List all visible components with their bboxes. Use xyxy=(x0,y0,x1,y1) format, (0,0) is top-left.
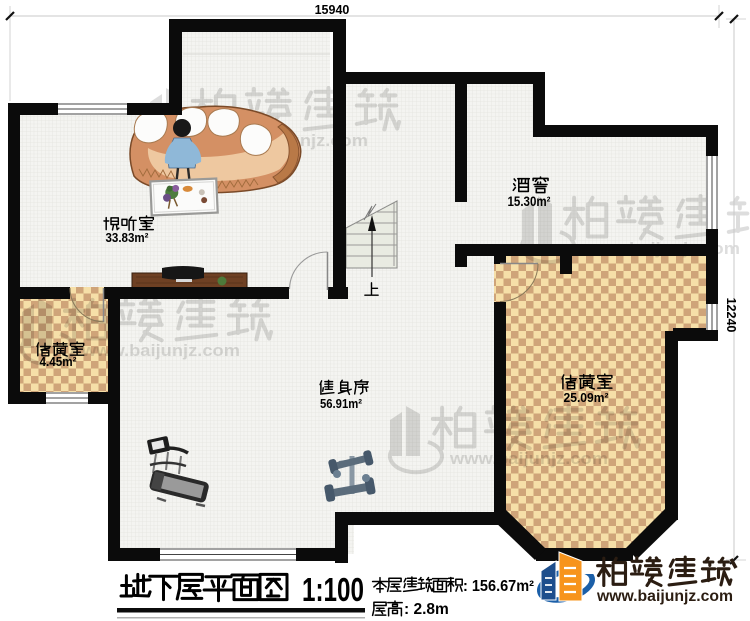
svg-text:4.45m²: 4.45m² xyxy=(40,354,78,369)
svg-text:www.baijunjz.com: www.baijunjz.com xyxy=(81,341,240,360)
svg-text:15.30m²: 15.30m² xyxy=(508,194,551,209)
svg-text:www.baijunjz.com: www.baijunjz.com xyxy=(449,449,608,468)
svg-text:: 2.8m: : 2.8m xyxy=(404,601,449,618)
svg-text:1:100: 1:100 xyxy=(302,571,364,608)
svg-text:25.09m²: 25.09m² xyxy=(564,390,610,405)
svg-text:www.baijunjz.com: www.baijunjz.com xyxy=(596,588,733,605)
svg-text:56.91m²: 56.91m² xyxy=(320,396,363,411)
svg-text:: 156.67m²: : 156.67m² xyxy=(463,578,534,595)
svg-text:15940: 15940 xyxy=(315,3,350,17)
svg-text:12240: 12240 xyxy=(724,298,738,333)
svg-text:33.83m²: 33.83m² xyxy=(106,230,150,245)
